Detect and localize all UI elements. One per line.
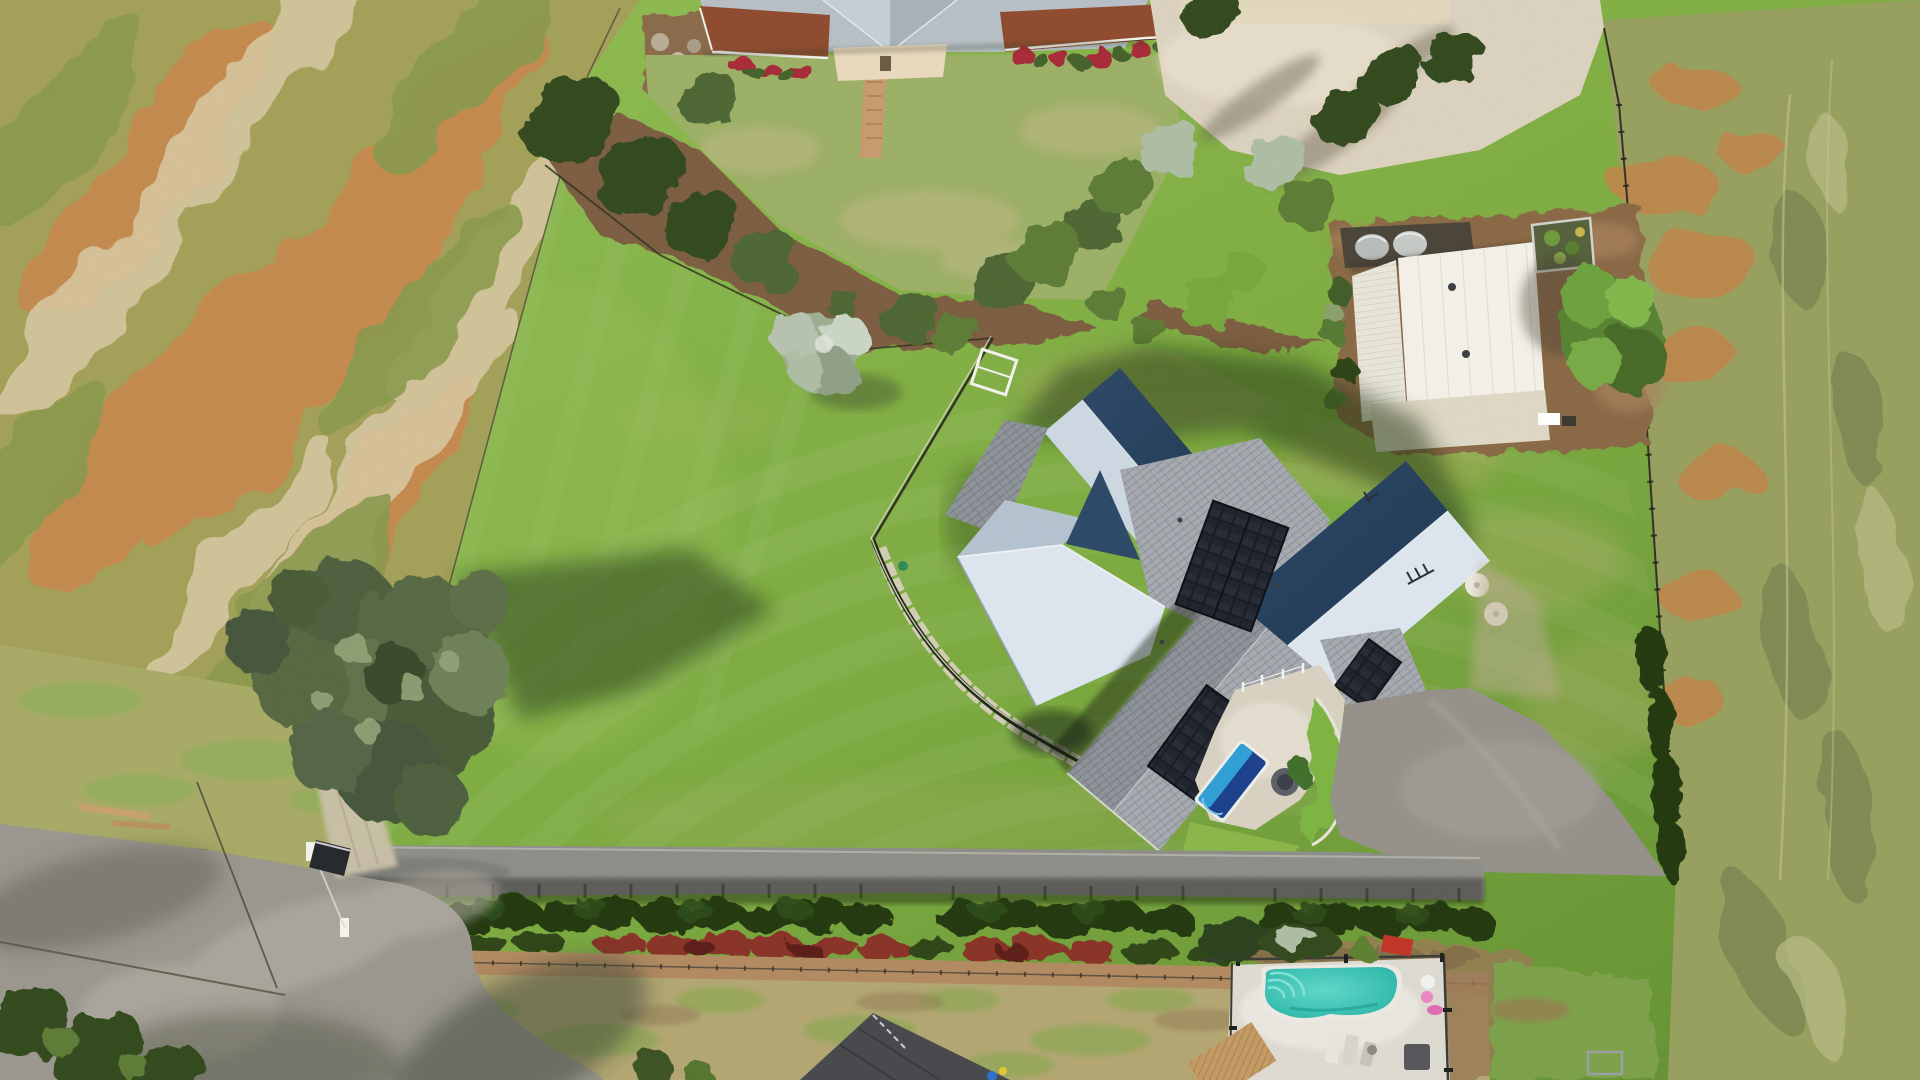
- aerial-photo-stage: [0, 0, 1920, 1080]
- film-grain: [0, 0, 1920, 1080]
- aerial-photo: [0, 0, 1920, 1080]
